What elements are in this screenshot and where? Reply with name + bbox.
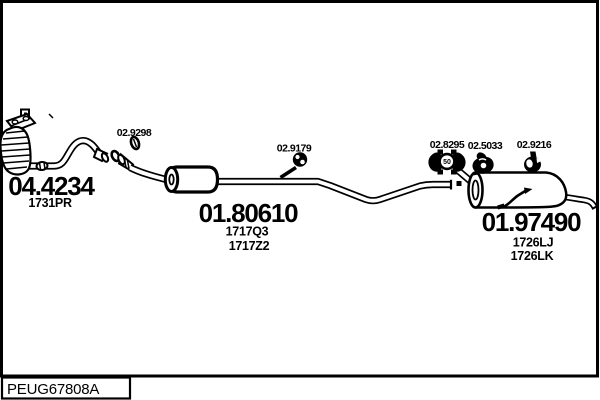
flange-hole <box>23 117 29 121</box>
exhaust-diagram: 50 04.4234 1731PR 01.80610 1717Q3 1717Z2… <box>0 0 600 400</box>
footer-code-box: PEUG67808A <box>2 378 130 399</box>
part-subcode-centre-1: 1717Q3 <box>226 225 269 239</box>
pipe-sleeve <box>36 161 48 170</box>
part-number-centre: 01.80610 <box>199 198 299 228</box>
centre-muffler-inlet-hole <box>169 175 173 185</box>
exhaust-diagram-page: 50 04.4234 1731PR 01.80610 1717Q3 1717Z2… <box>0 0 600 400</box>
part-subcode-catalytic: 1731PR <box>28 196 72 210</box>
fitting-number-rubber-hook: 02.5033 <box>468 140 503 152</box>
fitting-number-clamp-ring: 02.9298 <box>117 127 152 139</box>
part-subcode-rear-2: 1726LK <box>511 249 554 263</box>
part-subcode-centre-2: 1717Z2 <box>229 239 270 253</box>
fitting-number-rubber-mount: 02.9216 <box>517 139 552 151</box>
part-number-rear: 01.97490 <box>482 207 582 237</box>
joint-dot <box>457 181 462 186</box>
part-subcode-rear-1: 1726LJ <box>513 236 554 250</box>
flange-hole <box>12 120 18 124</box>
footer-code-label: PEUG67808A <box>7 381 99 398</box>
rear-muffler-inlet-hole <box>473 181 479 200</box>
fitting-number-mounting-clamp: 02.8295 <box>430 139 465 151</box>
rear-muffler-body <box>476 173 566 208</box>
clamp-diameter-badge: 50 <box>443 159 451 166</box>
fitting-number-rubber-hanger: 02.9179 <box>277 143 312 155</box>
